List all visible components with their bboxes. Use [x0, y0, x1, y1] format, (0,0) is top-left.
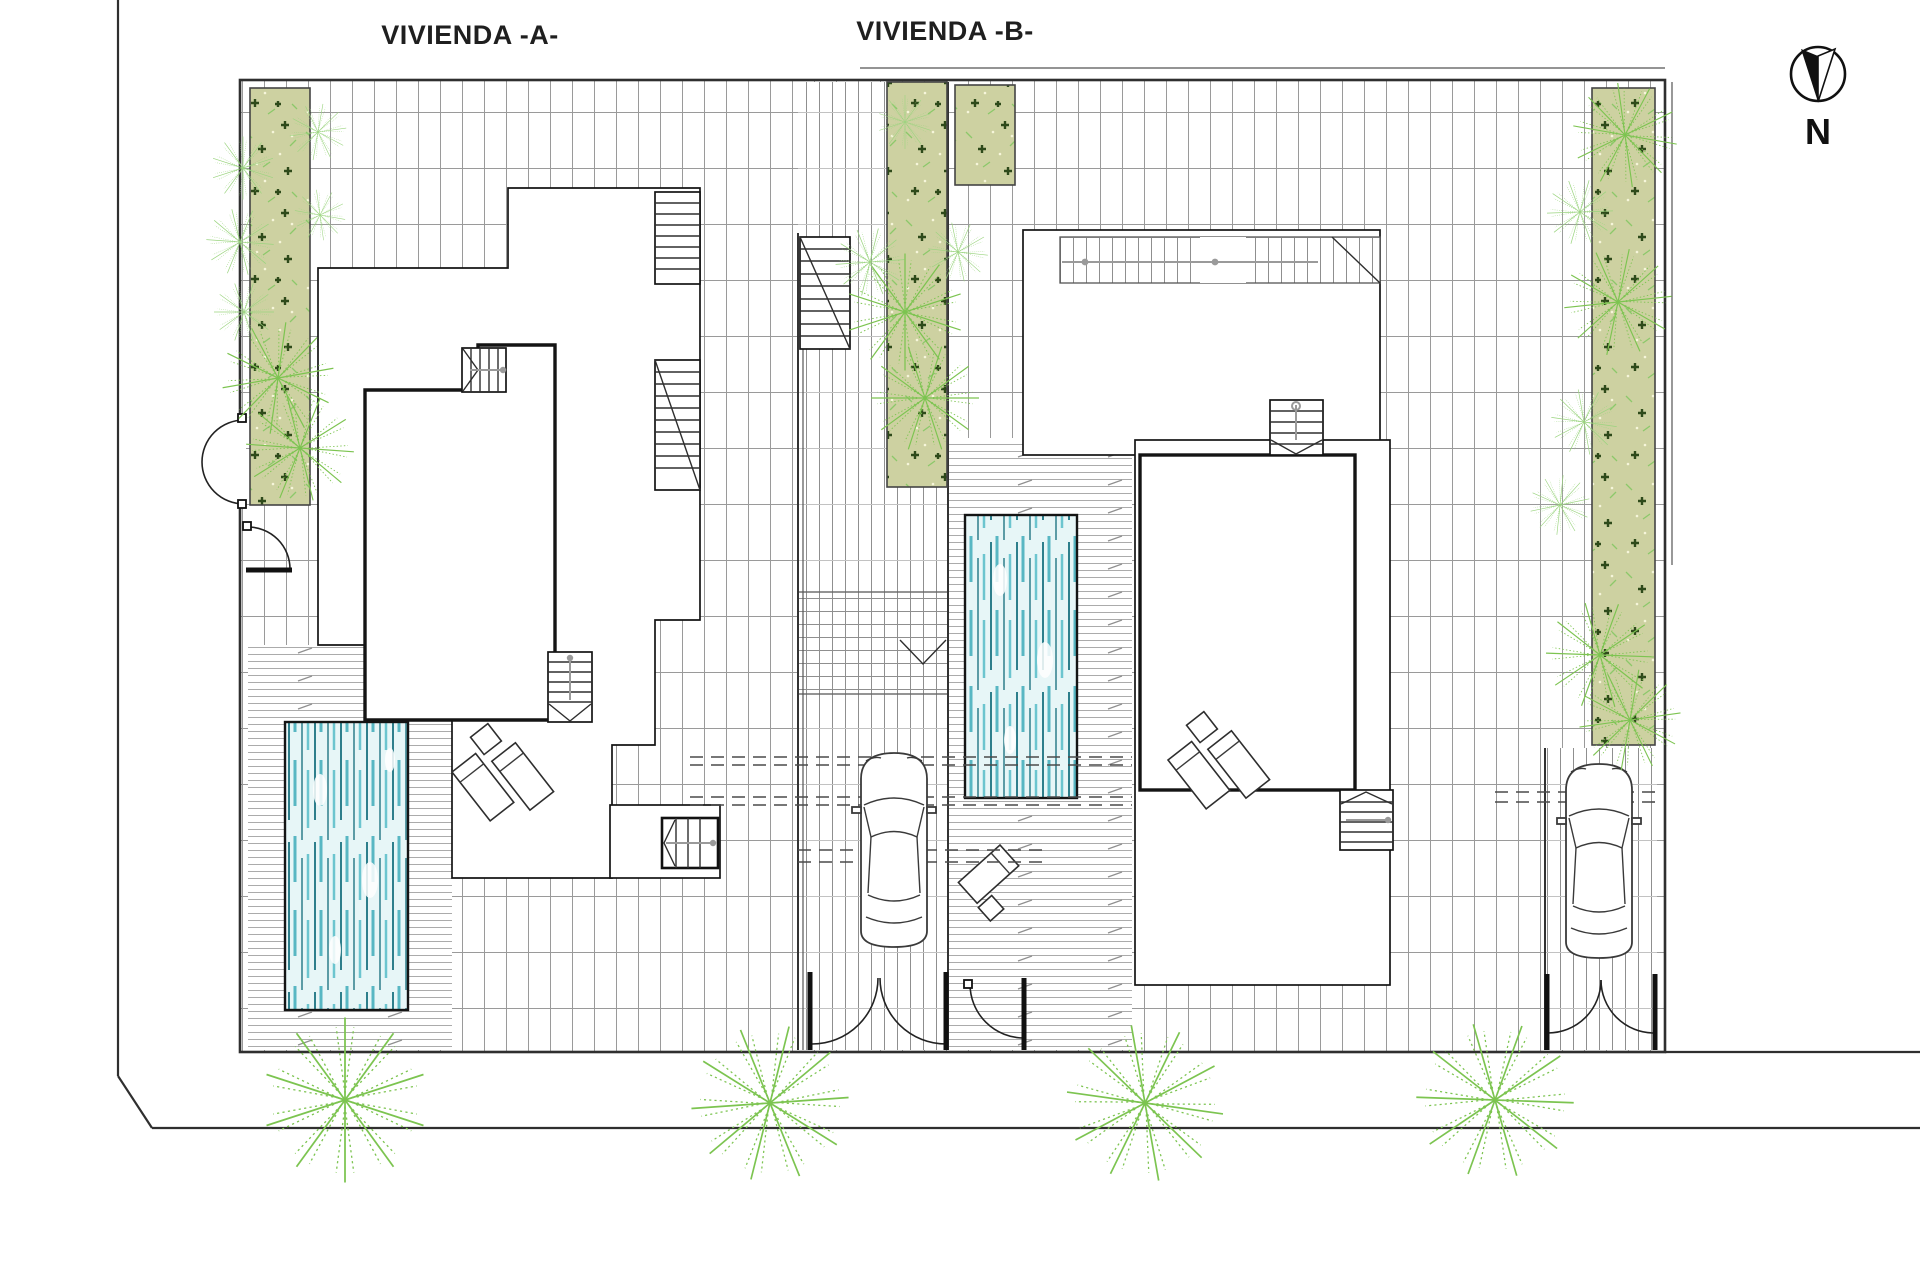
house-a-stair-run-upper [655, 192, 700, 284]
house-a-stair-top [462, 348, 506, 392]
site-plan-page: N VIVIENDA -A- VIVIENDA -B- [0, 0, 1920, 1280]
driveway-a-stair [800, 237, 850, 349]
porch-steps-a [798, 592, 948, 694]
house-a-stair-se [548, 652, 592, 722]
label-vivienda-a: VIVIENDA -A- [381, 20, 559, 50]
label-vivienda-b: VIVIENDA -B- [856, 16, 1034, 46]
north-label: N [1805, 111, 1831, 152]
north-arrow: N [1791, 47, 1845, 152]
house-b-footprint [1140, 455, 1355, 790]
pool-b [965, 515, 1077, 798]
house-b-stair-top [1270, 400, 1323, 455]
gate-left-street [202, 414, 246, 508]
house-a-stair-run-lower [655, 360, 700, 490]
car-b [1557, 764, 1641, 958]
planter-central-top [955, 85, 1015, 185]
planter-right [1592, 88, 1655, 745]
house-a-stair-entry [662, 818, 718, 868]
site-plan-drawing: N VIVIENDA -A- VIVIENDA -B- [0, 0, 1920, 1280]
house-a-footprint [365, 345, 555, 720]
car-a [852, 753, 936, 947]
planter-central [887, 82, 947, 487]
house-b-top-steps [1060, 237, 1380, 283]
house-b-stair-se [1340, 790, 1393, 850]
